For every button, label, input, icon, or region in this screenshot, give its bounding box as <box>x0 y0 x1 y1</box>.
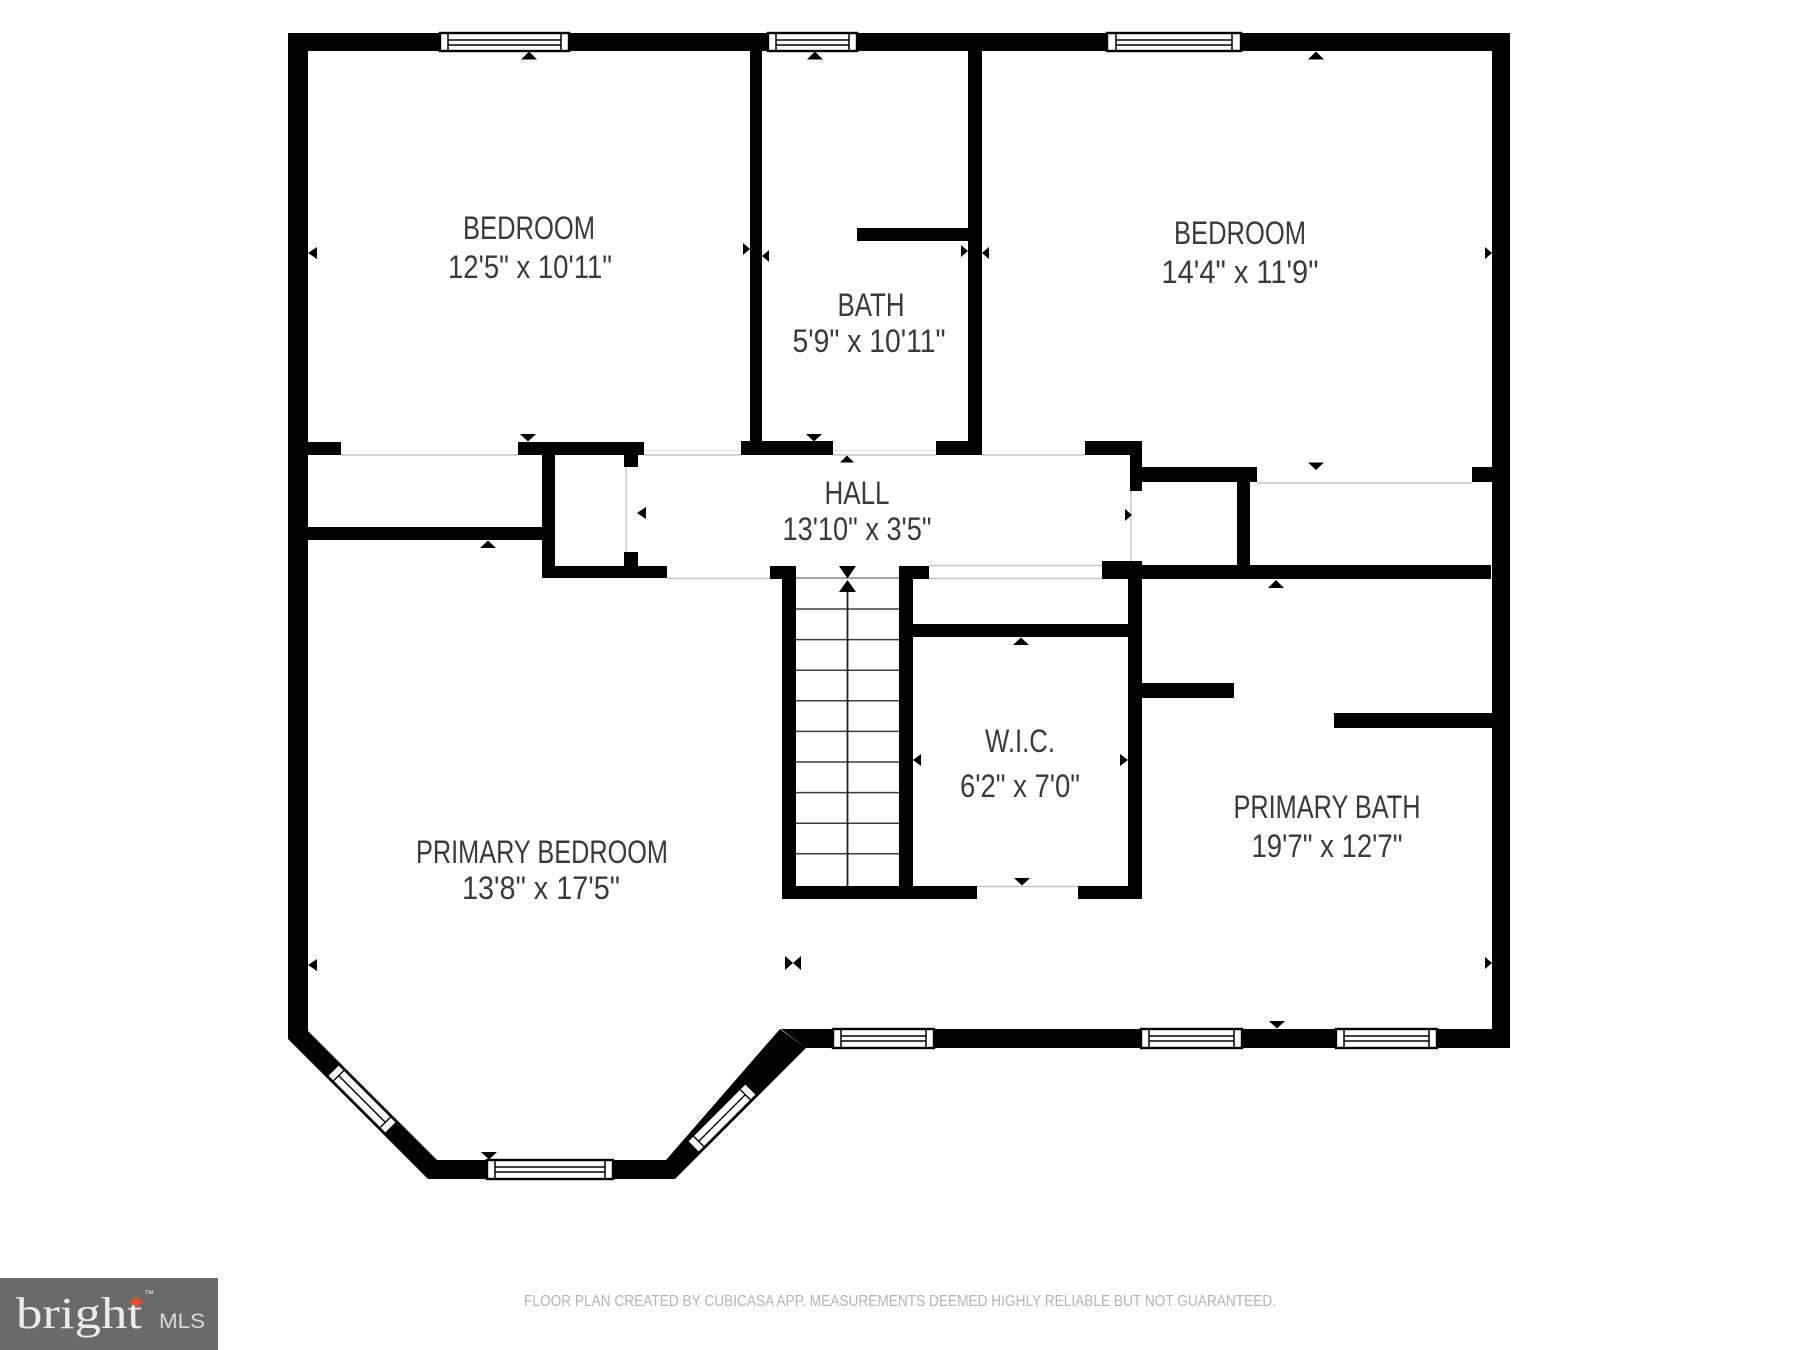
svg-text:BEDROOM: BEDROOM <box>1174 215 1306 251</box>
svg-text:™: ™ <box>144 1289 154 1300</box>
svg-text:13'10" x 3'5": 13'10" x 3'5" <box>783 511 932 547</box>
svg-text:BEDROOM: BEDROOM <box>463 210 595 246</box>
svg-text:MLS: MLS <box>159 1310 205 1333</box>
svg-text:FLOOR PLAN CREATED BY CUBICASA: FLOOR PLAN CREATED BY CUBICASA APP. MEAS… <box>524 1293 1276 1310</box>
svg-text:BATH: BATH <box>838 287 905 323</box>
svg-text:HALL: HALL <box>825 475 890 511</box>
svg-text:PRIMARY BATH: PRIMARY BATH <box>1234 789 1421 825</box>
svg-text:19'7" x 12'7": 19'7" x 12'7" <box>1252 828 1403 864</box>
svg-text:W.I.C.: W.I.C. <box>985 723 1055 759</box>
svg-text:5'9" x 10'11": 5'9" x 10'11" <box>793 323 946 359</box>
svg-text:13'8" x 17'5": 13'8" x 17'5" <box>462 870 620 906</box>
svg-text:6'2" x 7'0": 6'2" x 7'0" <box>960 768 1080 804</box>
svg-text:bright: bright <box>16 1289 142 1338</box>
svg-text:PRIMARY BEDROOM: PRIMARY BEDROOM <box>416 834 668 870</box>
svg-text:12'5" x 10'11": 12'5" x 10'11" <box>448 249 612 285</box>
svg-text:14'4" x 11'9": 14'4" x 11'9" <box>1162 254 1319 290</box>
